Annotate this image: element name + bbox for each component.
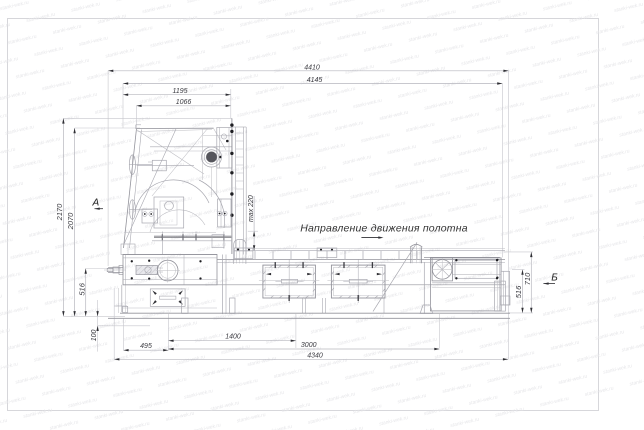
svg-text:stanki-wek.ru: stanki-wek.ru — [342, 154, 372, 167]
svg-text:stanki-wek.ru: stanki-wek.ru — [418, 280, 448, 293]
svg-text:stanki-wek.ru: stanki-wek.ru — [373, 290, 403, 303]
svg-text:stanki-wek.ru: stanki-wek.ru — [550, 34, 580, 47]
svg-text:stanki-wek.ru: stanki-wek.ru — [376, 200, 406, 213]
svg-text:stanki-wek.ru: stanki-wek.ru — [52, 23, 82, 36]
svg-text:stanki-wek.ru: stanki-wek.ru — [0, 78, 1, 91]
svg-text:stanki-wek.ru: stanki-wek.ru — [7, 34, 37, 47]
svg-text:stanki-wek.ru: stanki-wek.ru — [590, 205, 620, 218]
svg-text:stanki-wek.ru: stanki-wek.ru — [521, 113, 551, 126]
svg-text:stanki-wek.ru: stanki-wek.ru — [191, 422, 221, 430]
svg-text:stanki-wek.ru: stanki-wek.ru — [120, 421, 150, 430]
svg-text:stanki-wek.ru: stanki-wek.ru — [371, 75, 401, 88]
svg-text:stanki-wek.ru: stanki-wek.ru — [150, 37, 180, 50]
svg-text:stanki-wek.ru: stanki-wek.ru — [471, 0, 501, 11]
svg-text:stanki-wek.ru: stanki-wek.ru — [434, 43, 464, 56]
svg-text:stanki-wek.ru: stanki-wek.ru — [49, 114, 79, 127]
svg-text:stanki-wek.ru: stanki-wek.ru — [0, 0, 30, 12]
svg-text:stanki-wek.ru: stanki-wek.ru — [318, 52, 348, 65]
svg-text:stanki-wek.ru: stanki-wek.ru — [561, 283, 591, 296]
svg-text:stanki-wek.ru: stanki-wek.ru — [41, 80, 71, 93]
svg-text:stanki-wek.ru: stanki-wek.ru — [368, 166, 398, 179]
svg-text:stanki-wek.ru: stanki-wek.ru — [181, 173, 211, 186]
svg-text:stanki-wek.ru: stanki-wek.ru — [460, 360, 490, 373]
svg-text:stanki-wek.ru: stanki-wek.ru — [220, 344, 250, 357]
svg-text:stanki-wek.ru: stanki-wek.ru — [0, 203, 6, 216]
svg-text:stanki-wek.ru: stanki-wek.ru — [157, 71, 187, 84]
svg-text:stanki-wek.ru: stanki-wek.ru — [239, 16, 269, 29]
svg-text:stanki-wek.ru: stanki-wek.ru — [104, 353, 134, 366]
svg-text:stanki-wek.ru: stanki-wek.ru — [613, 307, 643, 320]
svg-text:stanki-wek.ru: stanki-wek.ru — [355, 7, 385, 20]
svg-text:stanki-wek.ru: stanki-wek.ru — [28, 226, 58, 239]
svg-text:stanki-wek.ru: stanki-wek.ru — [149, 342, 179, 355]
svg-text:stanki-wek.ru: stanki-wek.ru — [310, 323, 340, 336]
svg-text:stanki-wek.ru: stanki-wek.ru — [500, 225, 530, 238]
svg-text:stanki-wek.ru: stanki-wek.ru — [308, 108, 338, 121]
svg-text:stanki-wek.ru: stanki-wek.ru — [432, 133, 462, 146]
svg-text:stanki-wek.ru: stanki-wek.ru — [397, 87, 427, 100]
svg-text:stanki-wek.ru: stanki-wek.ru — [0, 56, 19, 69]
svg-text:stanki-wek.ru: stanki-wek.ru — [202, 61, 232, 74]
svg-text:stanki-wek.ru: stanki-wek.ru — [273, 62, 303, 75]
svg-text:stanki-wek.ru: stanki-wek.ru — [387, 144, 417, 157]
svg-text:stanki-wek.ru: stanki-wek.ru — [344, 369, 374, 382]
svg-text:stanki-wek.ru: stanki-wek.ru — [439, 167, 469, 180]
svg-text:stanki-wek.ru: stanki-wek.ru — [336, 335, 366, 348]
svg-text:stanki-wek.ru: stanki-wek.ru — [524, 328, 554, 341]
svg-text:stanki-wek.ru: stanki-wek.ru — [416, 65, 446, 78]
svg-text:stanki-wek.ru: stanki-wek.ru — [39, 170, 69, 183]
svg-text:stanki-wek.ru: stanki-wek.ru — [363, 41, 393, 54]
svg-text:stanki-wek.ru: stanki-wek.ru — [326, 391, 356, 404]
svg-text:stanki-wek.ru: stanki-wek.ru — [310, 18, 340, 31]
svg-text:stanki-wek.ru: stanki-wek.ru — [228, 378, 258, 391]
svg-text:stanki-wek.ru: stanki-wek.ru — [537, 181, 567, 194]
svg-text:stanki-wek.ru: stanki-wek.ru — [524, 22, 554, 35]
svg-text:stanki-wek.ru: stanki-wek.ru — [469, 89, 499, 102]
svg-text:stanki-wek.ru: stanki-wek.ru — [408, 336, 438, 349]
svg-text:stanki-wek.ru: stanki-wek.ru — [337, 29, 367, 42]
svg-text:stanki-wek.ru: stanki-wek.ru — [424, 99, 454, 112]
svg-text:stanki-wek.ru: stanki-wek.ru — [453, 21, 483, 34]
svg-text:stanki-wek.ru: stanki-wek.ru — [147, 127, 177, 140]
svg-text:stanki-wek.ru: stanki-wek.ru — [476, 123, 506, 136]
svg-text:stanki-wek.ru: stanki-wek.ru — [271, 153, 301, 166]
svg-text:stanki-wek.ru: stanki-wek.ru — [542, 305, 572, 318]
svg-text:stanki-wek.ru: stanki-wek.ru — [239, 321, 269, 334]
svg-text:stanki-wek.ru: stanki-wek.ru — [184, 388, 214, 401]
svg-text:stanki-wek.ru: stanki-wek.ru — [426, 314, 456, 327]
svg-text:stanki-wek.ru: stanki-wek.ru — [595, 24, 625, 37]
svg-text:stanki-wek.ru: stanki-wek.ru — [10, 249, 40, 262]
svg-text:stanki-wek.ru: stanki-wek.ru — [247, 356, 277, 369]
svg-text:stanki-wek.ru: stanki-wek.ru — [555, 159, 585, 172]
svg-text:stanki-wek.ru: stanki-wek.ru — [94, 103, 124, 116]
svg-text:stanki-wek.ru: stanki-wek.ru — [629, 375, 644, 388]
svg-text:2070: 2070 — [66, 212, 75, 231]
svg-text:stanki-wek.ru: stanki-wek.ru — [213, 310, 243, 323]
svg-text:stanki-wek.ru: stanki-wek.ru — [468, 394, 498, 407]
svg-text:stanki-wek.ru: stanki-wek.ru — [540, 90, 570, 103]
svg-text:stanki-wek.ru: stanki-wek.ru — [518, 203, 548, 216]
svg-text:stanki-wek.ru: stanki-wek.ru — [569, 12, 599, 25]
svg-text:stanki-wek.ru: stanki-wek.ru — [466, 179, 496, 192]
svg-text:stanki-wek.ru: stanki-wek.ru — [0, 22, 11, 35]
svg-text:stanki-wek.ru: stanki-wek.ru — [434, 348, 464, 361]
svg-text:stanki-wek.ru: stanki-wek.ru — [165, 410, 195, 423]
svg-text:stanki-wek.ru: stanki-wek.ru — [526, 237, 556, 250]
svg-text:stanki-wek.ru: stanki-wek.ru — [168, 320, 198, 333]
svg-text:stanki-wek.ru: stanki-wek.ru — [461, 55, 491, 68]
svg-text:stanki-wek.ru: stanki-wek.ru — [207, 185, 237, 198]
svg-text:stanki-wek.ru: stanki-wek.ru — [353, 98, 383, 111]
svg-text:stanki-wek.ru: stanki-wek.ru — [498, 10, 528, 23]
svg-text:4145: 4145 — [307, 77, 323, 84]
svg-text:stanki-wek.ru: stanki-wek.ru — [176, 354, 206, 367]
svg-text:stanki-wek.ru: stanki-wek.ru — [0, 293, 3, 306]
svg-text:stanki-wek.ru: stanki-wek.ru — [355, 313, 385, 326]
svg-text:stanki-wek.ru: stanki-wek.ru — [105, 47, 135, 60]
svg-text:stanki-wek.ru: stanki-wek.ru — [350, 188, 380, 201]
svg-text:stanki-wek.ru: stanki-wek.ru — [2, 215, 32, 228]
svg-text:stanki-wek.ru: stanki-wek.ru — [479, 338, 509, 351]
svg-text:stanki-wek.ru: stanki-wek.ru — [539, 396, 569, 409]
svg-text:stanki-wek.ru: stanki-wek.ru — [115, 296, 145, 309]
svg-text:stanki-wek.ru: stanki-wek.ru — [447, 202, 477, 215]
svg-text:stanki-wek.ru: stanki-wek.ru — [115, 0, 145, 3]
svg-text:stanki-wek.ru: stanki-wek.ru — [84, 160, 114, 173]
svg-text:stanki-wek.ru: stanki-wek.ru — [423, 405, 453, 418]
svg-text:stanki-wek.ru: stanki-wek.ru — [260, 209, 290, 222]
svg-text:stanki-wek.ru: stanki-wek.ru — [123, 330, 153, 343]
svg-text:stanki-wek.ru: stanki-wek.ru — [78, 35, 108, 48]
svg-text:stanki-wek.ru: stanki-wek.ru — [632, 285, 644, 298]
svg-text:stanki-wek.ru: stanki-wek.ru — [36, 261, 66, 274]
svg-text:stanki-wek.ru: stanki-wek.ru — [421, 190, 451, 203]
svg-text:stanki-wek.ru: stanki-wek.ru — [131, 364, 161, 377]
svg-text:stanki-wek.ru: stanki-wek.ru — [331, 210, 361, 223]
svg-text:stanki-wek.ru: stanki-wek.ru — [284, 6, 314, 19]
svg-text:stanki-wek.ru: stanki-wek.ru — [624, 251, 644, 264]
svg-text:stanki-wek.ru: stanki-wek.ru — [194, 26, 224, 39]
svg-text:stanki-wek.ru: stanki-wek.ru — [382, 19, 412, 32]
svg-text:stanki-wek.ru: stanki-wek.ru — [110, 172, 140, 185]
svg-text:495: 495 — [140, 343, 152, 350]
svg-text:stanki-wek.ru: stanki-wek.ru — [168, 15, 198, 28]
svg-text:stanki-wek.ru: stanki-wek.ru — [463, 270, 493, 283]
svg-text:stanki-wek.ru: stanki-wek.ru — [492, 191, 522, 204]
svg-text:stanki-wek.ru: stanki-wek.ru — [634, 194, 644, 207]
svg-text:stanki-wek.ru: stanki-wek.ru — [532, 56, 562, 69]
svg-text:stanki-wek.ru: stanki-wek.ru — [558, 68, 588, 81]
svg-text:stanki-wek.ru: stanki-wek.ru — [577, 46, 607, 59]
svg-text:stanki-wek.ru: stanki-wek.ru — [621, 341, 644, 354]
svg-text:stanki-wek.ru: stanki-wek.ru — [257, 299, 287, 312]
svg-text:stanki-wek.ru: stanki-wek.ru — [229, 72, 259, 85]
svg-text:stanki-wek.ru: stanki-wek.ru — [608, 182, 638, 195]
svg-text:stanki-wek.ru: stanki-wek.ru — [334, 425, 364, 430]
svg-text:stanki-wek.ru: stanki-wek.ru — [160, 286, 190, 299]
svg-text:stanki-wek.ru: stanki-wek.ru — [31, 136, 61, 149]
svg-text:stanki-wek.ru: stanki-wek.ru — [445, 292, 475, 305]
svg-text:stanki-wek.ru: stanki-wek.ru — [68, 92, 98, 105]
svg-text:3000: 3000 — [301, 342, 317, 349]
svg-text:stanki-wek.ru: stanki-wek.ru — [86, 375, 116, 388]
svg-text:stanki-wek.ru: stanki-wek.ru — [202, 366, 232, 379]
svg-text:stanki-wek.ru: stanki-wek.ru — [329, 0, 359, 8]
svg-text:stanki-wek.ru: stanki-wek.ru — [41, 385, 71, 398]
svg-text:stanki-wek.ru: stanki-wek.ru — [592, 114, 622, 127]
svg-text:stanki-wek.ru: stanki-wek.ru — [505, 350, 535, 363]
svg-text:stanki-wek.ru: stanki-wek.ru — [598, 239, 628, 252]
svg-text:stanki-wek.ru: stanki-wek.ru — [25, 317, 55, 330]
svg-text:stanki-wek.ru: stanki-wek.ru — [579, 261, 609, 274]
svg-text:stanki-wek.ru: stanki-wek.ru — [389, 53, 419, 66]
svg-text:stanki-wek.ru: stanki-wek.ru — [505, 44, 535, 57]
svg-text:stanki-wek.ru: stanki-wek.ru — [186, 298, 216, 311]
svg-text:stanki-wek.ru: stanki-wek.ru — [18, 283, 48, 296]
svg-text:stanki-wek.ru: stanki-wek.ru — [587, 0, 617, 2]
svg-text:stanki-wek.ru: stanki-wek.ru — [442, 382, 472, 395]
svg-text:stanki-wek.ru: stanki-wek.ru — [0, 327, 11, 340]
svg-text:100: 100 — [91, 329, 98, 341]
svg-text:stanki-wek.ru: stanki-wek.ru — [44, 295, 74, 308]
svg-text:stanki-wek.ru: stanki-wek.ru — [20, 192, 50, 205]
svg-text:stanki-wek.ru: stanki-wek.ru — [471, 304, 501, 317]
svg-text:stanki-wek.ru: stanki-wek.ru — [497, 316, 527, 329]
svg-text:stanki-wek.ru: stanki-wek.ru — [194, 332, 224, 345]
svg-text:516: 516 — [514, 285, 523, 298]
svg-text:stanki-wek.ru: stanki-wek.ru — [576, 351, 606, 364]
svg-text:stanki-wek.ru: stanki-wek.ru — [213, 4, 243, 17]
svg-text:stanki-wek.ru: stanki-wek.ru — [112, 387, 142, 400]
svg-text:Направление движения полотна: Направление движения полотна — [300, 223, 467, 235]
svg-text:Б: Б — [551, 273, 558, 284]
svg-text:stanki-wek.ru: stanki-wek.ru — [379, 415, 409, 428]
svg-text:stanki-wek.ru: stanki-wek.ru — [178, 264, 208, 277]
svg-text:stanki-wek.ru: stanki-wek.ru — [426, 9, 456, 22]
svg-text:stanki-wek.ru: stanki-wek.ru — [558, 374, 588, 387]
svg-text:stanki-wek.ru: stanki-wek.ru — [49, 419, 79, 430]
svg-text:stanki-wek.ru: stanki-wek.ru — [397, 393, 427, 406]
svg-text:stanki-wek.ru: stanki-wek.ru — [405, 121, 435, 134]
svg-text:stanki-wek.ru: stanki-wek.ru — [621, 36, 644, 49]
svg-text:stanki-wek.ru: stanki-wek.ru — [326, 86, 356, 99]
svg-text:4340: 4340 — [307, 352, 323, 359]
svg-text:stanki-wek.ru: stanki-wek.ru — [360, 132, 390, 145]
svg-text:stanki-wek.ru: stanki-wek.ru — [12, 158, 42, 171]
svg-text:stanki-wek.ru: stanki-wek.ru — [511, 169, 541, 182]
svg-text:stanki-wek.ru: stanki-wek.ru — [266, 28, 296, 41]
svg-text:stanki-wek.ru: stanki-wek.ru — [484, 157, 514, 170]
svg-text:stanki-wek.ru: stanki-wek.ru — [0, 395, 27, 408]
svg-text:stanki-wek.ru: stanki-wek.ru — [503, 135, 533, 148]
svg-text:stanki-wek.ru: stanki-wek.ru — [157, 376, 187, 389]
svg-text:stanki-wek.ru: stanki-wek.ru — [15, 373, 45, 386]
svg-text:stanki-wek.ru: stanki-wek.ru — [550, 339, 580, 352]
svg-text:stanki-wek.ru: stanki-wek.ru — [413, 156, 443, 169]
svg-text:stanki-wek.ru: stanki-wek.ru — [231, 287, 261, 300]
svg-text:stanki-wek.ru: stanki-wek.ru — [603, 58, 633, 71]
svg-text:stanki-wek.ru: stanki-wek.ru — [279, 187, 309, 200]
svg-text:stanki-wek.ru: stanki-wek.ru — [60, 57, 90, 70]
svg-text:stanki-wek.ru: stanki-wek.ru — [389, 359, 419, 372]
svg-text:stanki-wek.ru: stanki-wek.ru — [487, 372, 517, 385]
svg-text:stanki-wek.ru: stanki-wek.ru — [81, 250, 111, 263]
svg-text:stanki-wek.ru: stanki-wek.ru — [534, 271, 564, 284]
svg-text:stanki-wek.ru: stanki-wek.ru — [34, 46, 64, 59]
svg-text:stanki-wek.ru: stanki-wek.ru — [55, 238, 85, 251]
svg-text:stanki-wek.ru: stanki-wek.ru — [508, 259, 538, 272]
svg-text:stanki-wek.ru: stanki-wek.ru — [495, 406, 525, 419]
svg-text:stanki-wek.ru: stanki-wek.ru — [62, 272, 92, 285]
svg-text:stanki-wek.ru: stanki-wek.ru — [176, 49, 206, 62]
svg-text:stanki-wek.ru: stanki-wek.ru — [210, 95, 240, 108]
svg-text:stanki-wek.ru: stanki-wek.ru — [584, 80, 614, 93]
svg-text:stanki-wek.ru: stanki-wek.ru — [292, 40, 322, 53]
svg-text:stanki-wek.ru: stanki-wek.ru — [563, 193, 593, 206]
svg-text:stanki-wek.ru: stanki-wek.ru — [381, 325, 411, 338]
svg-text:stanki-wek.ru: stanki-wek.ru — [131, 59, 161, 72]
svg-text:stanki-wek.ru: stanki-wek.ru — [215, 219, 245, 232]
svg-text:stanki-wek.ru: stanki-wek.ru — [600, 148, 630, 161]
svg-text:stanki-wek.ru: stanki-wek.ru — [566, 102, 596, 115]
svg-text:stanki-wek.ru: stanki-wek.ru — [605, 273, 635, 286]
svg-text:stanki-wek.ru: stanki-wek.ru — [595, 329, 625, 342]
svg-text:stanki-wek.ru: stanki-wek.ru — [0, 418, 8, 430]
svg-text:stanki-wek.ru: stanki-wek.ru — [352, 403, 382, 416]
svg-text:stanki-wek.ru: stanki-wek.ru — [255, 390, 285, 403]
svg-text:stanki-wek.ru: stanki-wek.ru — [410, 246, 440, 259]
svg-text:stanki-wek.ru: stanki-wek.ru — [450, 417, 480, 430]
svg-text:stanki-wek.ru: stanki-wek.ru — [329, 301, 359, 314]
svg-text:stanki-wek.ru: stanki-wek.ru — [73, 216, 103, 229]
svg-text:4410: 4410 — [304, 64, 320, 71]
svg-text:stanki-wek.ru: stanki-wek.ru — [640, 13, 644, 26]
svg-text:stanki-wek.ru: stanki-wek.ru — [33, 351, 63, 364]
svg-text:stanki-wek.ru: stanki-wek.ru — [258, 0, 288, 6]
svg-text:stanki-wek.ru: stanki-wek.ru — [516, 0, 546, 1]
svg-text:stanki-wek.ru: stanki-wek.ru — [263, 118, 293, 131]
svg-text:stanki-wek.ru: stanki-wek.ru — [136, 184, 166, 197]
svg-text:stanki-wek.ru: stanki-wek.ru — [247, 50, 277, 63]
svg-text:stanki-wek.ru: stanki-wek.ru — [23, 407, 53, 420]
svg-text:stanki-wek.ru: stanki-wek.ru — [187, 0, 217, 5]
svg-text:stanki-wek.ru: stanki-wek.ru — [334, 120, 364, 133]
svg-text:stanki-wek.ru: stanki-wek.ru — [205, 276, 235, 289]
svg-text:stanki-wek.ru: stanki-wek.ru — [531, 362, 561, 375]
svg-text:stanki-wek.ru: stanki-wek.ru — [97, 318, 127, 331]
svg-text:710: 710 — [523, 272, 532, 285]
svg-text:stanki-wek.ru: stanki-wek.ru — [263, 424, 293, 430]
svg-text:stanki-wek.ru: stanki-wek.ru — [513, 384, 543, 397]
svg-text:stanki-wek.ru: stanki-wek.ru — [408, 31, 438, 44]
svg-text:stanki-wek.ru: stanki-wek.ru — [611, 92, 641, 105]
svg-text:stanki-wek.ru: stanki-wek.ru — [123, 25, 153, 38]
svg-text:stanki-wek.ru: stanki-wek.ru — [236, 412, 266, 425]
svg-text:stanki-wek.ru: stanki-wek.ru — [474, 213, 504, 226]
svg-text:stanki-wek.ru: stanki-wek.ru — [379, 110, 409, 123]
svg-text:stanki-wek.ru: stanki-wek.ru — [268, 243, 298, 256]
svg-text:stanki-wek.ru: stanki-wek.ru — [57, 148, 87, 161]
svg-text:stanki-wek.ru: stanki-wek.ru — [305, 198, 335, 211]
svg-text:516: 516 — [77, 282, 86, 295]
svg-text:stanki-wek.ru: stanki-wek.ru — [495, 101, 525, 114]
svg-text:stanki-wek.ru: stanki-wek.ru — [60, 363, 90, 376]
svg-text:stanki-wek.ru: stanki-wek.ru — [640, 319, 644, 332]
svg-text:stanki-wek.ru: stanki-wek.ru — [155, 161, 185, 174]
svg-text:stanki-wek.ru: stanki-wek.ru — [629, 70, 644, 83]
svg-text:1400: 1400 — [225, 334, 241, 341]
svg-text:stanki-wek.ru: stanki-wek.ru — [302, 289, 332, 302]
svg-text:stanki-wek.ru: stanki-wek.ru — [297, 164, 327, 177]
svg-text:stanki-wek.ru: stanki-wek.ru — [345, 64, 375, 77]
svg-text:1195: 1195 — [172, 88, 187, 95]
svg-text:stanki-wek.ru: stanki-wek.ru — [289, 130, 319, 143]
svg-text:stanki-wek.ru: stanki-wek.ru — [0, 90, 27, 103]
svg-text:stanki-wek.ru: stanki-wek.ru — [323, 176, 353, 189]
svg-text:stanki-wek.ru: stanki-wek.ru — [139, 399, 169, 412]
svg-text:stanki-wek.ru: stanki-wek.ru — [616, 216, 644, 229]
svg-text:stanki-wek.ru: stanki-wek.ru — [244, 141, 274, 154]
svg-text:stanki-wek.ru: stanki-wek.ru — [627, 160, 644, 173]
svg-text:max 220: max 220 — [248, 195, 255, 222]
svg-text:stanki-wek.ru: stanki-wek.ru — [184, 83, 214, 96]
svg-text:stanki-wek.ru: stanki-wek.ru — [479, 33, 509, 46]
svg-text:stanki-wek.ru: stanki-wek.ru — [237, 107, 267, 120]
svg-text:stanki-wek.ru: stanki-wek.ru — [582, 170, 612, 183]
svg-text:stanki-wek.ru: stanki-wek.ru — [316, 142, 346, 155]
svg-text:stanki-wek.ru: stanki-wek.ru — [255, 84, 285, 97]
svg-text:stanki-wek.ru: stanki-wek.ru — [221, 38, 251, 51]
svg-text:stanki-wek.ru: stanki-wek.ru — [487, 67, 517, 80]
svg-text:stanki-wek.ru: stanki-wek.ru — [400, 0, 430, 9]
svg-text:stanki-wek.ru: stanki-wek.ru — [571, 227, 601, 240]
svg-text:stanki-wek.ru: stanki-wek.ru — [23, 102, 53, 115]
svg-text:stanki-wek.ru: stanki-wek.ru — [584, 385, 614, 398]
svg-text:stanki-wek.ru: stanki-wek.ru — [44, 0, 74, 2]
svg-text:stanki-wek.ru: stanki-wek.ru — [363, 347, 393, 360]
svg-text:stanki-wek.ru: stanki-wek.ru — [0, 146, 16, 159]
svg-text:stanki-wek.ru: stanki-wek.ru — [173, 139, 203, 152]
svg-text:stanki-wek.ru: stanki-wek.ru — [300, 379, 330, 392]
svg-text:1066: 1066 — [176, 99, 192, 106]
svg-text:stanki-wek.ru: stanki-wek.ru — [0, 361, 19, 374]
svg-text:stanki-wek.ru: stanki-wek.ru — [65, 182, 95, 195]
svg-text:stanki-wek.ru: stanki-wek.ru — [529, 147, 559, 160]
svg-text:stanki-wek.ru: stanki-wek.ru — [0, 305, 29, 318]
svg-text:stanki-wek.ru: stanki-wek.ru — [450, 111, 480, 124]
svg-text:stanki-wek.ru: stanki-wek.ru — [76, 126, 106, 139]
svg-text:stanki-wek.ru: stanki-wek.ru — [568, 317, 598, 330]
svg-text:stanki-wek.ru: stanki-wek.ru — [281, 402, 311, 415]
svg-text:stanki-wek.ru: stanki-wek.ru — [513, 79, 543, 92]
svg-text:stanki-wek.ru: stanki-wek.ru — [416, 371, 446, 384]
svg-text:stanki-wek.ru: stanki-wek.ru — [26, 11, 56, 24]
svg-text:stanki-wek.ru: stanki-wek.ru — [5, 124, 35, 137]
svg-text:stanki-wek.ru: stanki-wek.ru — [52, 329, 82, 342]
svg-text:stanki-wek.ru: stanki-wek.ru — [455, 236, 485, 249]
svg-text:stanki-wek.ru: stanki-wek.ru — [603, 363, 633, 376]
svg-text:stanki-wek.ru: stanki-wek.ru — [637, 104, 644, 117]
svg-text:stanki-wek.ru: stanki-wek.ru — [142, 3, 172, 16]
svg-text:stanki-wek.ru: stanki-wek.ru — [371, 381, 401, 394]
svg-text:stanki-wek.ru: stanki-wek.ru — [78, 341, 108, 354]
svg-text:stanki-wek.ru: stanki-wek.ru — [71, 1, 101, 14]
svg-text:А: А — [91, 198, 99, 209]
svg-text:stanki-wek.ru: stanki-wek.ru — [619, 126, 644, 139]
svg-text:stanki-wek.ru: stanki-wek.ru — [395, 178, 425, 191]
